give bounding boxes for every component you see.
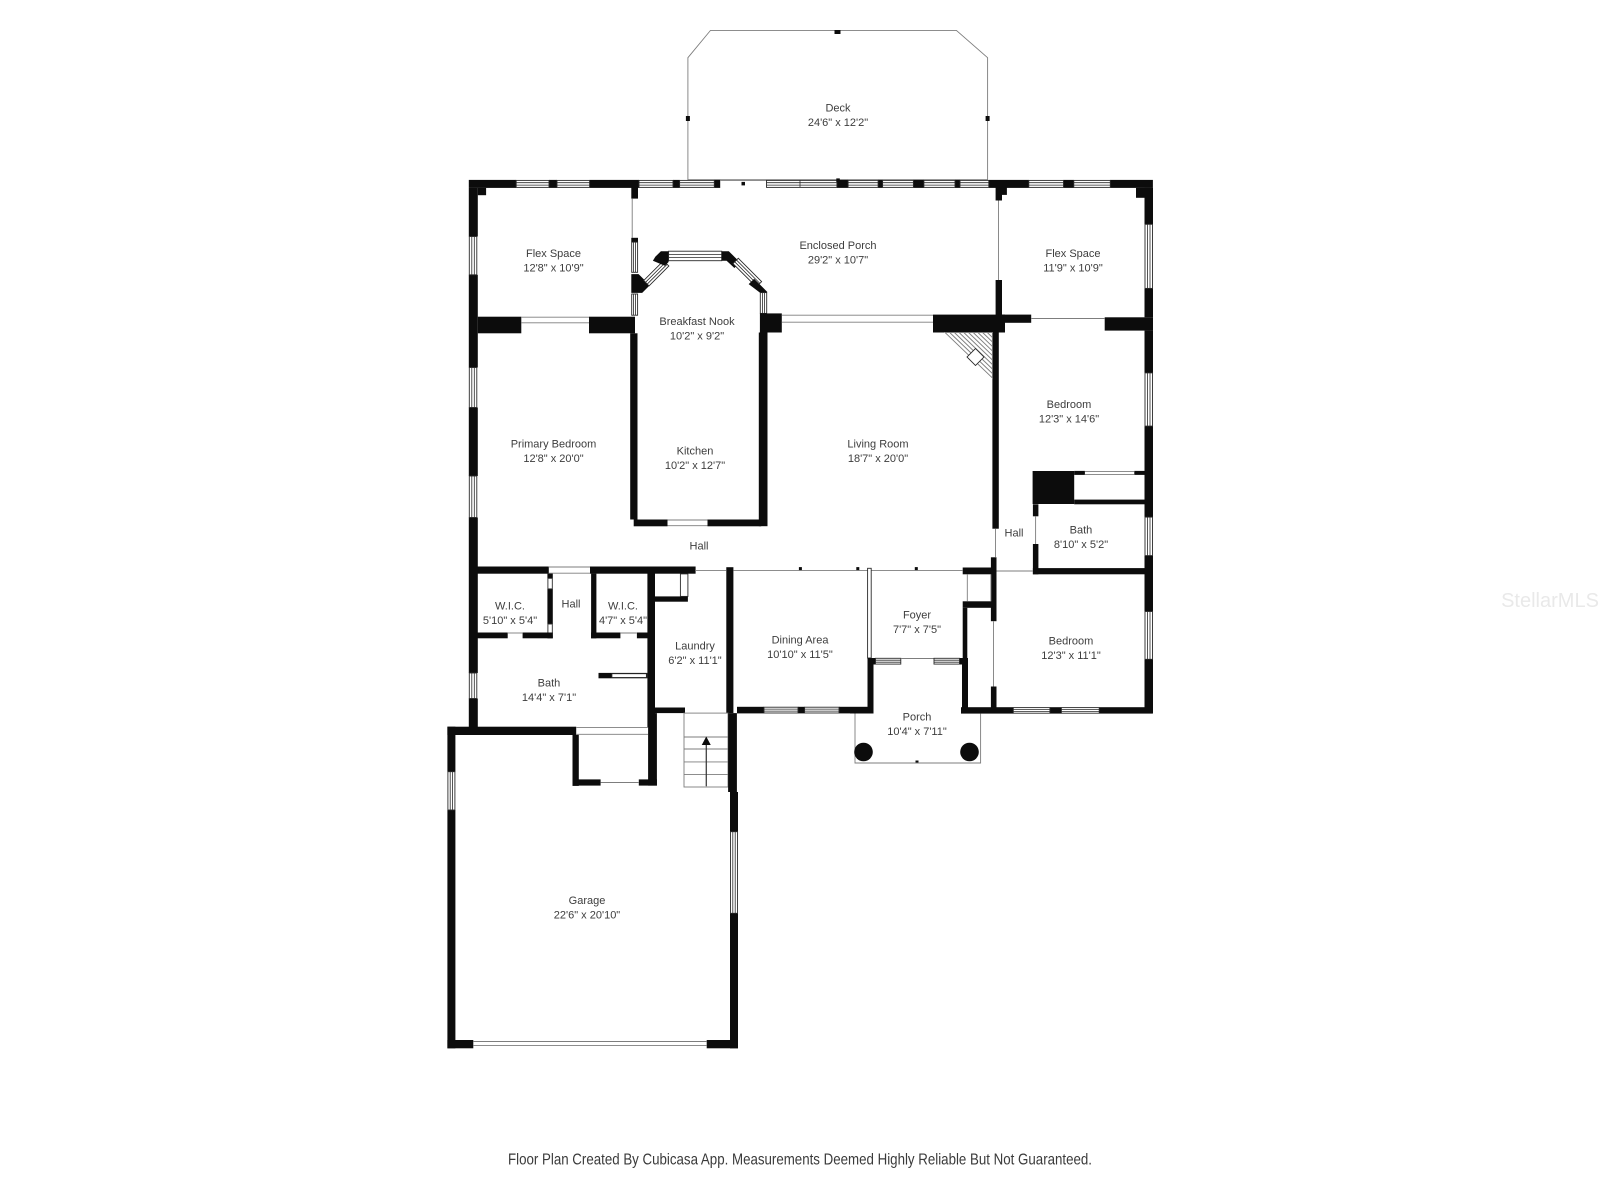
svg-text:18'7" x 20'0": 18'7" x 20'0" bbox=[848, 453, 908, 465]
svg-text:Flex Space: Flex Space bbox=[1045, 248, 1100, 260]
svg-text:14'4" x 7'1": 14'4" x 7'1" bbox=[522, 692, 576, 704]
svg-text:24'6" x 12'2": 24'6" x 12'2" bbox=[808, 117, 868, 129]
svg-text:Bedroom: Bedroom bbox=[1049, 636, 1094, 648]
svg-text:Kitchen: Kitchen bbox=[677, 446, 714, 458]
svg-text:5'10" x 5'4": 5'10" x 5'4" bbox=[483, 615, 537, 627]
svg-text:Living Room: Living Room bbox=[847, 439, 908, 451]
svg-text:StellarMLS: StellarMLS bbox=[1501, 590, 1599, 612]
svg-text:10'2" x 9'2": 10'2" x 9'2" bbox=[670, 331, 724, 343]
svg-text:12'8" x 10'9": 12'8" x 10'9" bbox=[523, 263, 583, 275]
svg-text:Bath: Bath bbox=[538, 678, 561, 690]
svg-text:Primary Bedroom: Primary Bedroom bbox=[511, 439, 597, 451]
svg-text:10'4" x 7'11": 10'4" x 7'11" bbox=[887, 726, 947, 738]
svg-text:29'2" x 10'7": 29'2" x 10'7" bbox=[808, 255, 868, 267]
svg-text:W.I.C.: W.I.C. bbox=[608, 601, 638, 613]
svg-text:4'7" x 5'4": 4'7" x 5'4" bbox=[599, 615, 647, 627]
svg-text:Flex Space: Flex Space bbox=[526, 248, 581, 260]
svg-text:Hall: Hall bbox=[690, 541, 709, 553]
svg-text:6'2" x 11'1": 6'2" x 11'1" bbox=[668, 655, 721, 667]
svg-text:Deck: Deck bbox=[825, 103, 851, 115]
svg-text:22'6" x 20'10": 22'6" x 20'10" bbox=[554, 910, 621, 922]
svg-text:Breakfast Nook: Breakfast Nook bbox=[659, 316, 735, 328]
svg-text:10'2" x 12'7": 10'2" x 12'7" bbox=[665, 460, 725, 472]
svg-text:12'3" x 11'1": 12'3" x 11'1" bbox=[1041, 650, 1101, 662]
svg-text:Garage: Garage bbox=[569, 895, 606, 907]
svg-text:12'3" x 14'6": 12'3" x 14'6" bbox=[1039, 414, 1099, 426]
svg-text:8'10" x 5'2": 8'10" x 5'2" bbox=[1054, 539, 1108, 551]
svg-text:7'7" x 7'5": 7'7" x 7'5" bbox=[893, 624, 941, 636]
svg-text:Laundry: Laundry bbox=[675, 641, 715, 653]
svg-text:10'10" x 11'5": 10'10" x 11'5" bbox=[767, 649, 833, 661]
svg-text:Hall: Hall bbox=[1005, 528, 1024, 540]
svg-text:Foyer: Foyer bbox=[903, 610, 931, 622]
svg-text:Enclosed Porch: Enclosed Porch bbox=[799, 240, 876, 252]
svg-text:Bedroom: Bedroom bbox=[1047, 399, 1092, 411]
svg-text:Dining Area: Dining Area bbox=[772, 635, 830, 647]
svg-text:12'8" x 20'0": 12'8" x 20'0" bbox=[523, 453, 583, 465]
svg-text:Porch: Porch bbox=[903, 712, 932, 724]
svg-text:Floor Plan Created By Cubicasa: Floor Plan Created By Cubicasa App. Meas… bbox=[508, 1152, 1092, 1169]
svg-text:Bath: Bath bbox=[1070, 525, 1093, 537]
svg-text:11'9" x 10'9": 11'9" x 10'9" bbox=[1043, 263, 1103, 275]
svg-text:W.I.C.: W.I.C. bbox=[495, 601, 525, 613]
svg-text:Hall: Hall bbox=[562, 599, 581, 611]
